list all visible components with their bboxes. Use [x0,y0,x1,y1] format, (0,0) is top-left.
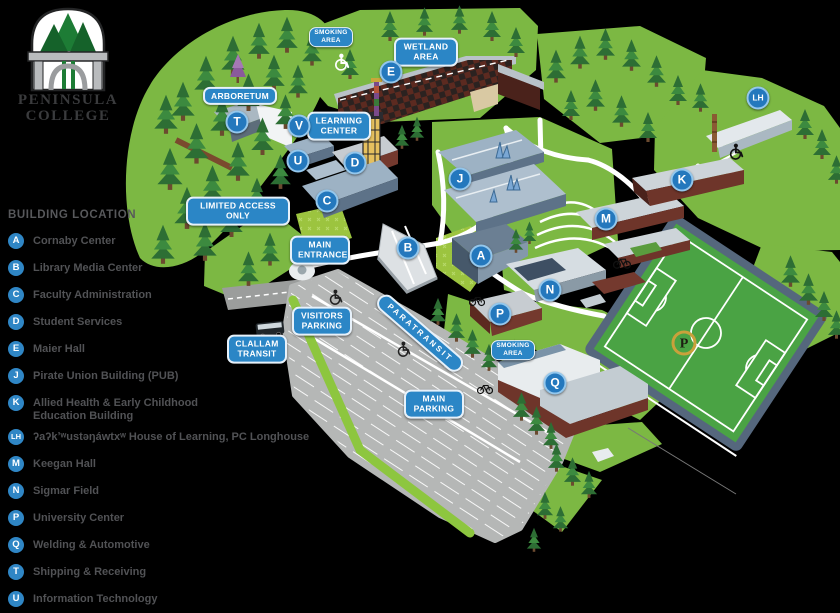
legend-item-n: N Sigmar Field [8,483,228,499]
map-marker-b: B [397,237,420,260]
map-marker-d: D [344,152,367,175]
map-marker-q: Q [544,372,567,395]
legend-item-c: C Faculty Administration [8,287,228,303]
label-main-entrance: MAIN ENTRANCE [290,236,350,265]
legend-badge-q: Q [8,537,24,553]
map-marker-lh: LH [747,87,770,110]
college-logo: PENINSULA COLLEGE [4,6,154,124]
label-learning-center: LEARNING CENTER [307,112,371,141]
legend-item-lh: LH ʔaʔkʼʷustəŋáwtxʷ House of Learning, P… [8,429,228,445]
logo-text-line2: COLLEGE [4,108,132,124]
legend-item-a: A Cornaby Center [8,233,228,249]
legend-label-d: Student Services [33,314,122,329]
totem-pole-icon [712,114,717,152]
map-marker-c: C [316,190,339,213]
legend-label-k: Allied Health & Early Childhood Educatio… [33,395,219,422]
legend-label-e: Maier Hall [33,341,85,356]
legend-label-q: Welding & Automotive [33,537,150,552]
legend-item-m: M Keegan Hall [8,456,228,472]
legend-badge-j: J [8,368,24,384]
campus-map-page: P [0,0,840,613]
legend-label-n: Sigmar Field [33,483,99,498]
legend-label-a: Cornaby Center [33,233,116,248]
legend-badge-e: E [8,341,24,357]
map-marker-n: N [539,279,562,302]
map-marker-v: V [288,115,311,138]
legend-item-q: Q Welding & Automotive [8,537,228,553]
map-marker-e: E [380,61,403,84]
map-marker-p: P [489,303,512,326]
legend-item-d: D Student Services [8,314,228,330]
label-smoking-area-south: SMOKING AREA [491,340,535,360]
legend-badge-b: B [8,260,24,276]
legend-badge-m: M [8,456,24,472]
legend-label-t: Shipping & Receiving [33,564,146,579]
legend-badge-lh: LH [8,429,24,445]
logo-text-line1: PENINSULA [4,92,132,108]
map-marker-j: J [449,168,472,191]
label-arboretum: ARBORETUM [203,87,277,105]
legend-badge-d: D [8,314,24,330]
legend-label-j: Pirate Union Building (PUB) [33,368,178,383]
label-clallam-transit: CLALLAM TRANSIT [227,335,287,364]
label-wetland-area: WETLAND AREA [394,38,458,67]
legend-badge-k: K [8,395,24,411]
legend-label-u: Information Technology [33,591,157,606]
legend-badge-u: U [8,591,24,607]
map-marker-t: T [226,111,249,134]
legend-badge-n: N [8,483,24,499]
map-marker-u: U [287,150,310,173]
legend-item-b: B Library Media Center [8,260,228,276]
svg-text:P: P [680,337,689,352]
logo-arch-icon [4,6,132,92]
map-marker-k: K [671,169,694,192]
legend-item-p: P University Center [8,510,228,526]
legend-item-k: K Allied Health & Early Childhood Educat… [8,395,228,422]
map-marker-m: M [595,208,618,231]
legend-item-e: E Maier Hall [8,341,228,357]
legend-item-j: J Pirate Union Building (PUB) [8,368,228,384]
legend-badge-t: T [8,564,24,580]
legend-item-u: U Information Technology [8,591,228,607]
legend-badge-a: A [8,233,24,249]
legend-badge-p: P [8,510,24,526]
legend-item-t: T Shipping & Receiving [8,564,228,580]
legend-label-b: Library Media Center [33,260,142,275]
legend-title: BUILDING LOCATION [8,209,228,221]
legend-label-lh: ʔaʔkʼʷustəŋáwtxʷ House of Learning, PC L… [33,429,309,444]
bleacher [580,294,606,308]
legend-label-m: Keegan Hall [33,456,96,471]
label-visitors-parking: VISITORS PARKING [292,307,352,336]
label-smoking-area-north: SMOKING AREA [309,27,353,47]
legend-label-c: Faculty Administration [33,287,152,302]
legend-badge-c: C [8,287,24,303]
legend-label-p: University Center [33,510,124,525]
building-location-legend: BUILDING LOCATION A Cornaby Center B Lib… [8,209,228,613]
map-marker-a: A [470,245,493,268]
label-main-parking: MAIN PARKING [404,390,464,419]
